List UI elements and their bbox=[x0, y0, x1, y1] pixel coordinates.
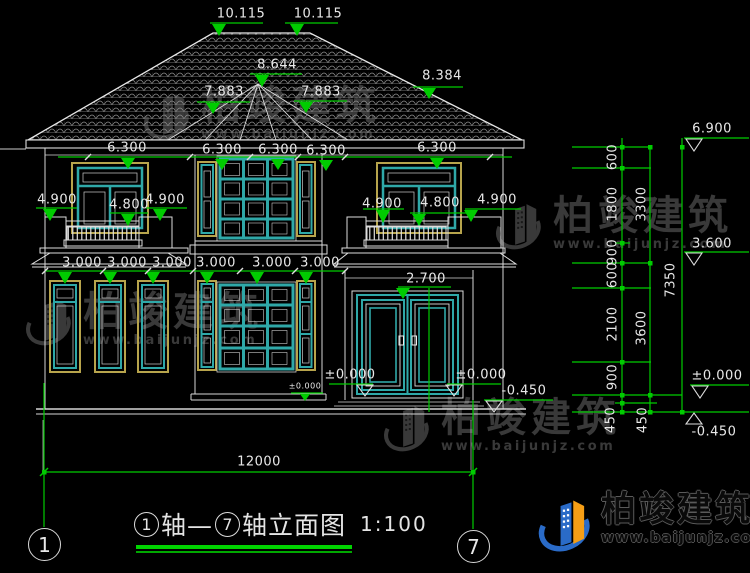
title-text-mid: 轴— bbox=[161, 506, 213, 542]
window-2f-bay-narrow-left bbox=[198, 162, 216, 236]
window-2f-left bbox=[72, 163, 148, 233]
window-1f-left-1 bbox=[50, 281, 80, 372]
axis-bubble-1-label: 1 bbox=[38, 533, 51, 557]
window-1f-left-2 bbox=[95, 281, 125, 372]
title-scale: 1:100 bbox=[360, 512, 428, 536]
window-1f-bay-narrow-right bbox=[297, 281, 315, 370]
brand-logo: 柏竣建筑 www.baijunjz.com bbox=[537, 492, 750, 558]
axis-bubble-1: 1 bbox=[28, 528, 61, 561]
brand-logo-icon bbox=[537, 492, 595, 558]
first-floor-windows bbox=[50, 281, 315, 372]
title-axis-7-label: 7 bbox=[222, 515, 232, 534]
extension-lines bbox=[43, 420, 471, 470]
cad-sheet: 10.11510.1158.6447.8837.8838.3846.3006.3… bbox=[0, 0, 750, 573]
title-text-suffix: 轴立面图 bbox=[242, 506, 346, 542]
door-handle-right bbox=[412, 336, 417, 345]
window-2f-bay-center bbox=[217, 156, 296, 241]
brand-name: 柏竣建筑 bbox=[601, 492, 750, 529]
title-underline-thick bbox=[136, 545, 352, 549]
window-2f-bay-narrow-right bbox=[297, 162, 315, 236]
title-axis-1-label: 1 bbox=[141, 515, 151, 534]
entry-door bbox=[352, 291, 463, 398]
bay-mid-slab bbox=[190, 241, 327, 254]
elevation-drawing bbox=[0, 0, 750, 573]
window-1f-bay-center bbox=[217, 282, 296, 372]
window-1f-bay-narrow-left bbox=[198, 281, 216, 370]
roof bbox=[0, 33, 524, 149]
title-axis-circle-7: 7 bbox=[215, 512, 240, 537]
window-1f-left-3 bbox=[138, 281, 168, 372]
drawing-title: 1 轴— 7 轴立面图 1:100 bbox=[134, 506, 428, 542]
axis-bubble-7-label: 7 bbox=[467, 535, 480, 559]
title-axis-circle-1: 1 bbox=[134, 512, 159, 537]
axis-bubble-7: 7 bbox=[457, 530, 490, 563]
balcony-right bbox=[334, 217, 516, 267]
brand-url: www.baijunjz.com bbox=[601, 530, 750, 546]
title-underline-thin bbox=[136, 551, 352, 553]
